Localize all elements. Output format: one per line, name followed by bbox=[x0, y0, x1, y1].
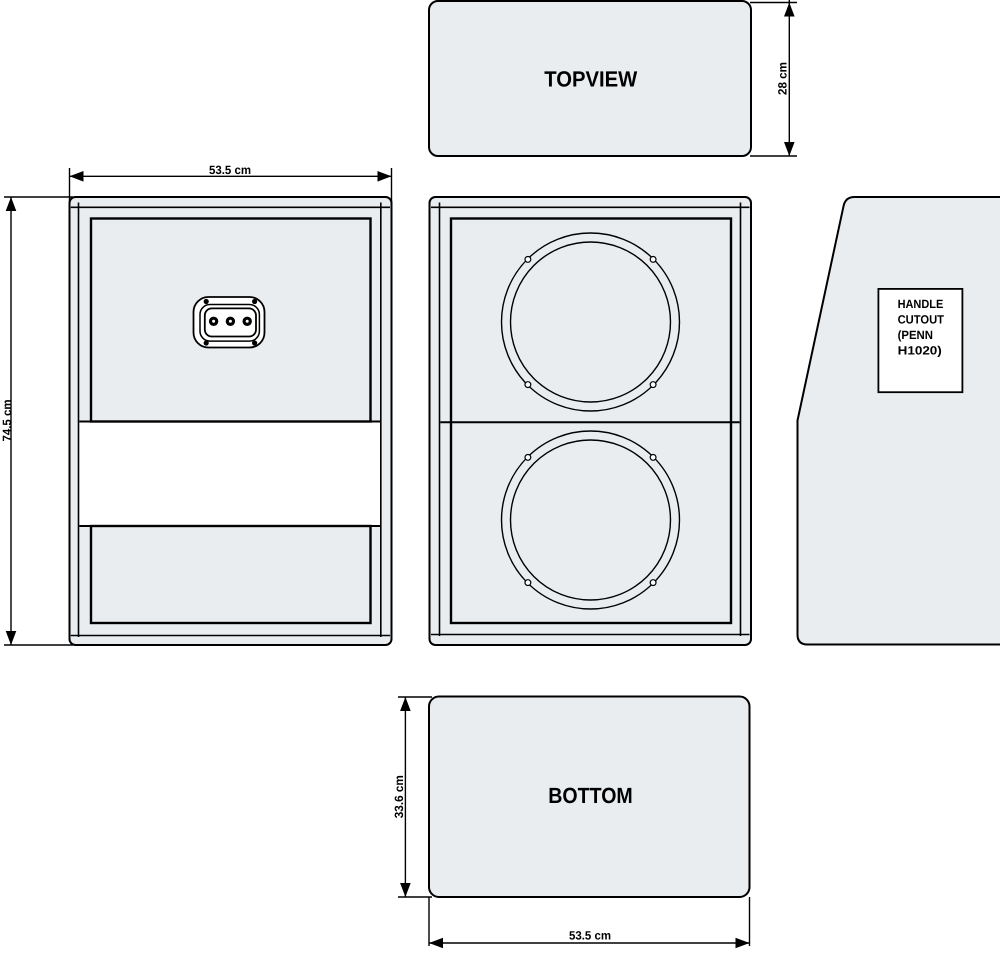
svg-text:33.6 cm: 33.6 cm bbox=[392, 775, 406, 818]
svg-text:(PENN: (PENN bbox=[898, 328, 933, 342]
svg-text:74.5 cm: 74.5 cm bbox=[0, 400, 14, 442]
svg-text:28 cm: 28 cm bbox=[776, 62, 790, 95]
svg-text:53.5 cm: 53.5 cm bbox=[209, 163, 251, 177]
svg-text:H1020): H1020) bbox=[898, 344, 942, 358]
svg-text:HANDLE: HANDLE bbox=[898, 297, 944, 311]
svg-text:53.5 cm: 53.5 cm bbox=[569, 929, 611, 943]
svg-text:BOTTOM: BOTTOM bbox=[548, 783, 633, 808]
svg-text:TOPVIEW: TOPVIEW bbox=[544, 67, 637, 92]
svg-text:CUTOUT: CUTOUT bbox=[898, 313, 945, 327]
